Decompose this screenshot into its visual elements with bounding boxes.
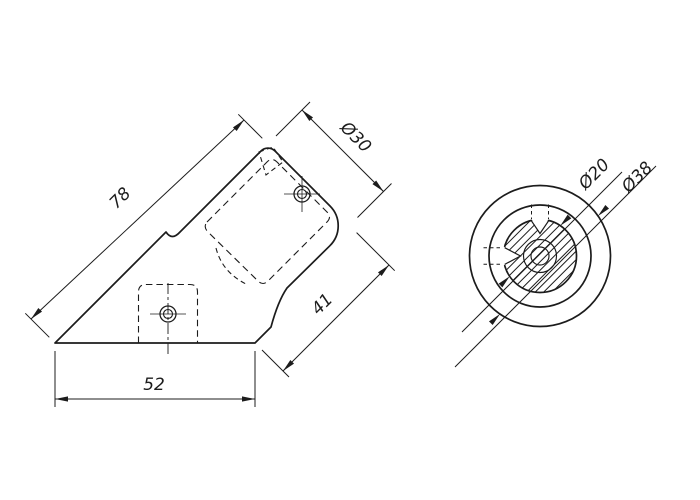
dim-dia38-label: Ø38 [617, 158, 657, 198]
dim-dia30-extension-lines [276, 102, 392, 218]
arm-screw-hole-marker [284, 176, 320, 212]
dim-78-line [31, 120, 244, 319]
dim-78-extension-lines [25, 114, 262, 337]
dim-52-arrow-start [55, 396, 68, 401]
dim-dia38-line [455, 166, 656, 367]
dimension-dia30: Ø30 [276, 102, 392, 218]
technical-drawing: 78 Ø30 41 52 [0, 0, 700, 500]
dim-41-label: 41 [308, 290, 337, 319]
end-view: Ø20 Ø38 [455, 155, 657, 367]
side-view: 78 Ø30 41 52 [25, 102, 394, 407]
dim-52-arrow-end [242, 396, 255, 401]
dim-41-line [283, 265, 389, 371]
hidden-screw-counterbore [259, 147, 283, 175]
drawing-canvas: 78 Ø30 41 52 [0, 0, 700, 500]
dim-dia20-label: Ø20 [574, 155, 614, 195]
hidden-socket-cone-arc [216, 248, 246, 284]
dim-78-label: 78 [106, 184, 136, 214]
dimension-52: 52 [55, 351, 255, 407]
dim-52-label: 52 [143, 375, 165, 395]
dim-dia30-line [302, 110, 384, 192]
dim-dia20-line [462, 172, 622, 332]
dim-dia30-label: Ø30 [335, 117, 375, 157]
dimension-78: 78 [25, 114, 262, 337]
left-screw-hidden-lines [484, 248, 504, 264]
dimension-41: 41 [262, 233, 395, 377]
part-outline [55, 148, 338, 343]
